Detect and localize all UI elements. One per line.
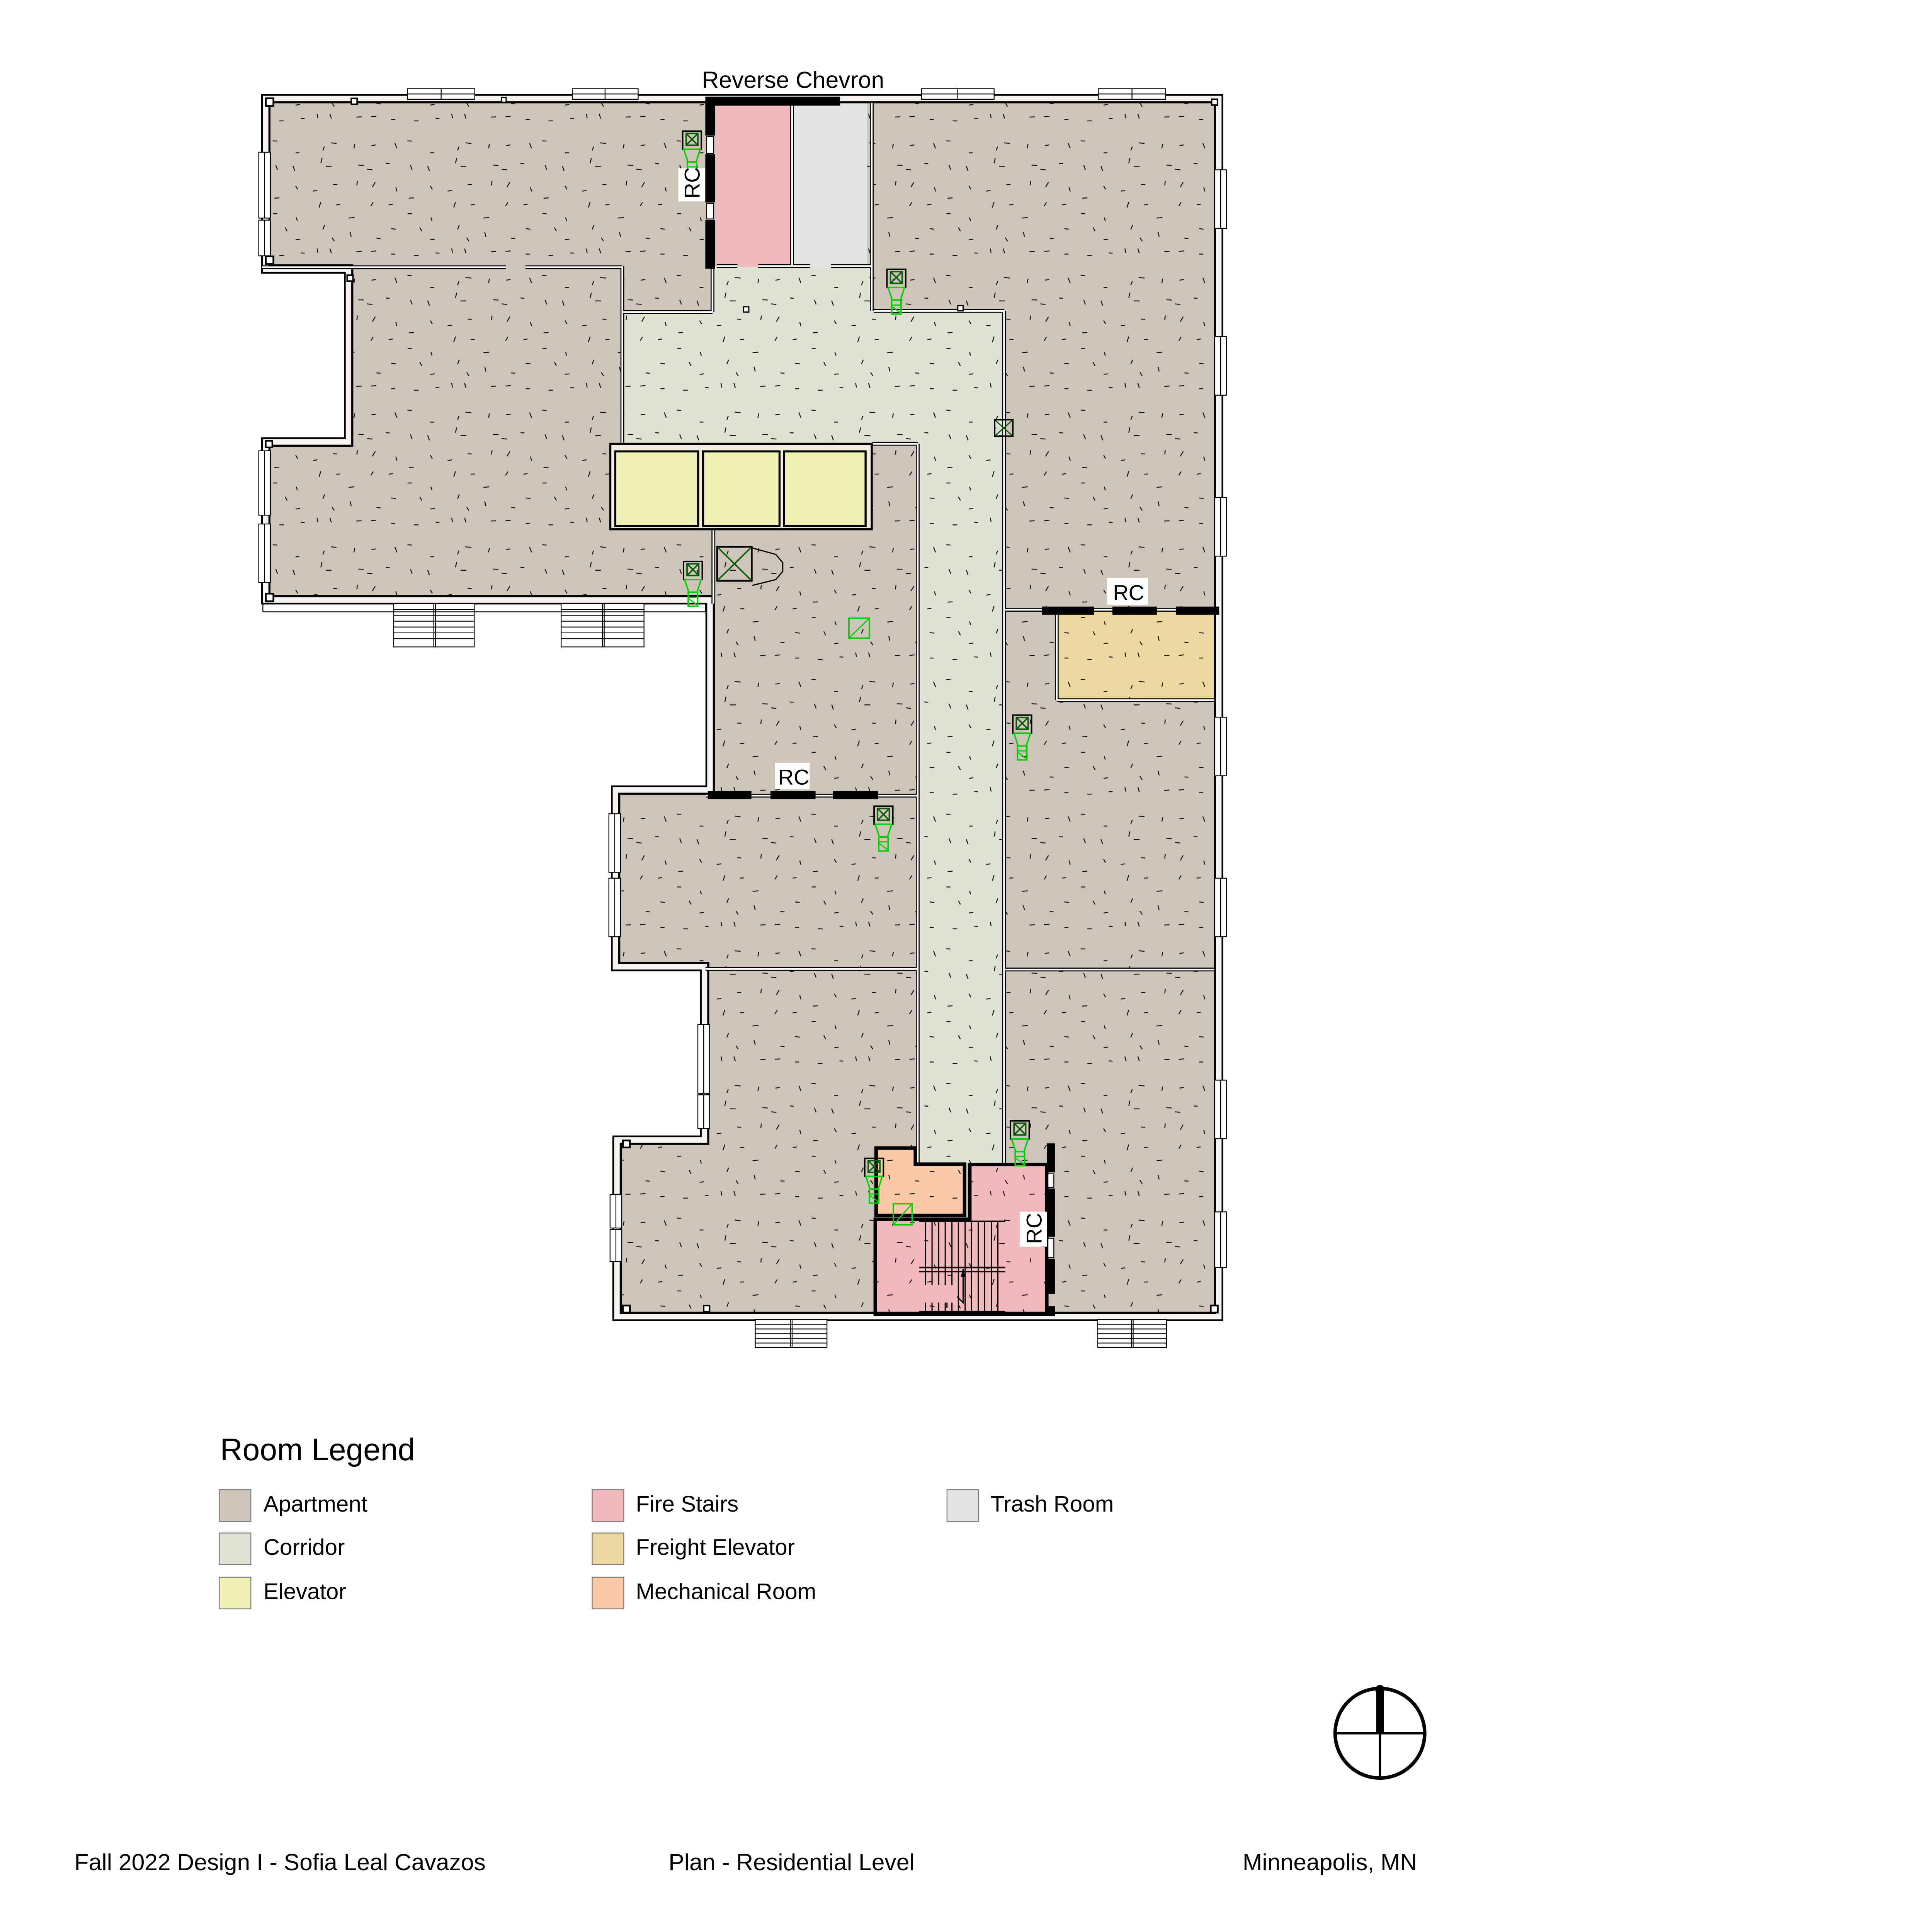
svg-text:Elevator: Elevator	[264, 1579, 346, 1604]
svg-text:Minneapolis, MN: Minneapolis, MN	[1243, 1849, 1417, 1875]
svg-text:Trash Room: Trash Room	[991, 1492, 1114, 1517]
svg-text:Reverse Chevron: Reverse Chevron	[702, 66, 884, 93]
svg-text:Freight Elevator: Freight Elevator	[636, 1535, 795, 1560]
svg-text:Corridor: Corridor	[264, 1535, 345, 1560]
svg-text:Fire Stairs: Fire Stairs	[636, 1492, 738, 1517]
svg-text:Mechanical Room: Mechanical Room	[636, 1579, 816, 1604]
svg-text:RC: RC	[778, 765, 810, 789]
svg-text:RC: RC	[680, 167, 704, 199]
svg-text:RC: RC	[1022, 1213, 1046, 1244]
svg-text:Apartment: Apartment	[264, 1492, 367, 1517]
svg-text:Plan - Residential Level: Plan - Residential Level	[668, 1849, 915, 1875]
svg-text:RC: RC	[1113, 580, 1144, 605]
svg-text:Fall 2022 Design I - Sofia Lea: Fall 2022 Design I - Sofia Leal Cavazos	[74, 1849, 485, 1875]
svg-text:Room Legend: Room Legend	[220, 1432, 415, 1467]
